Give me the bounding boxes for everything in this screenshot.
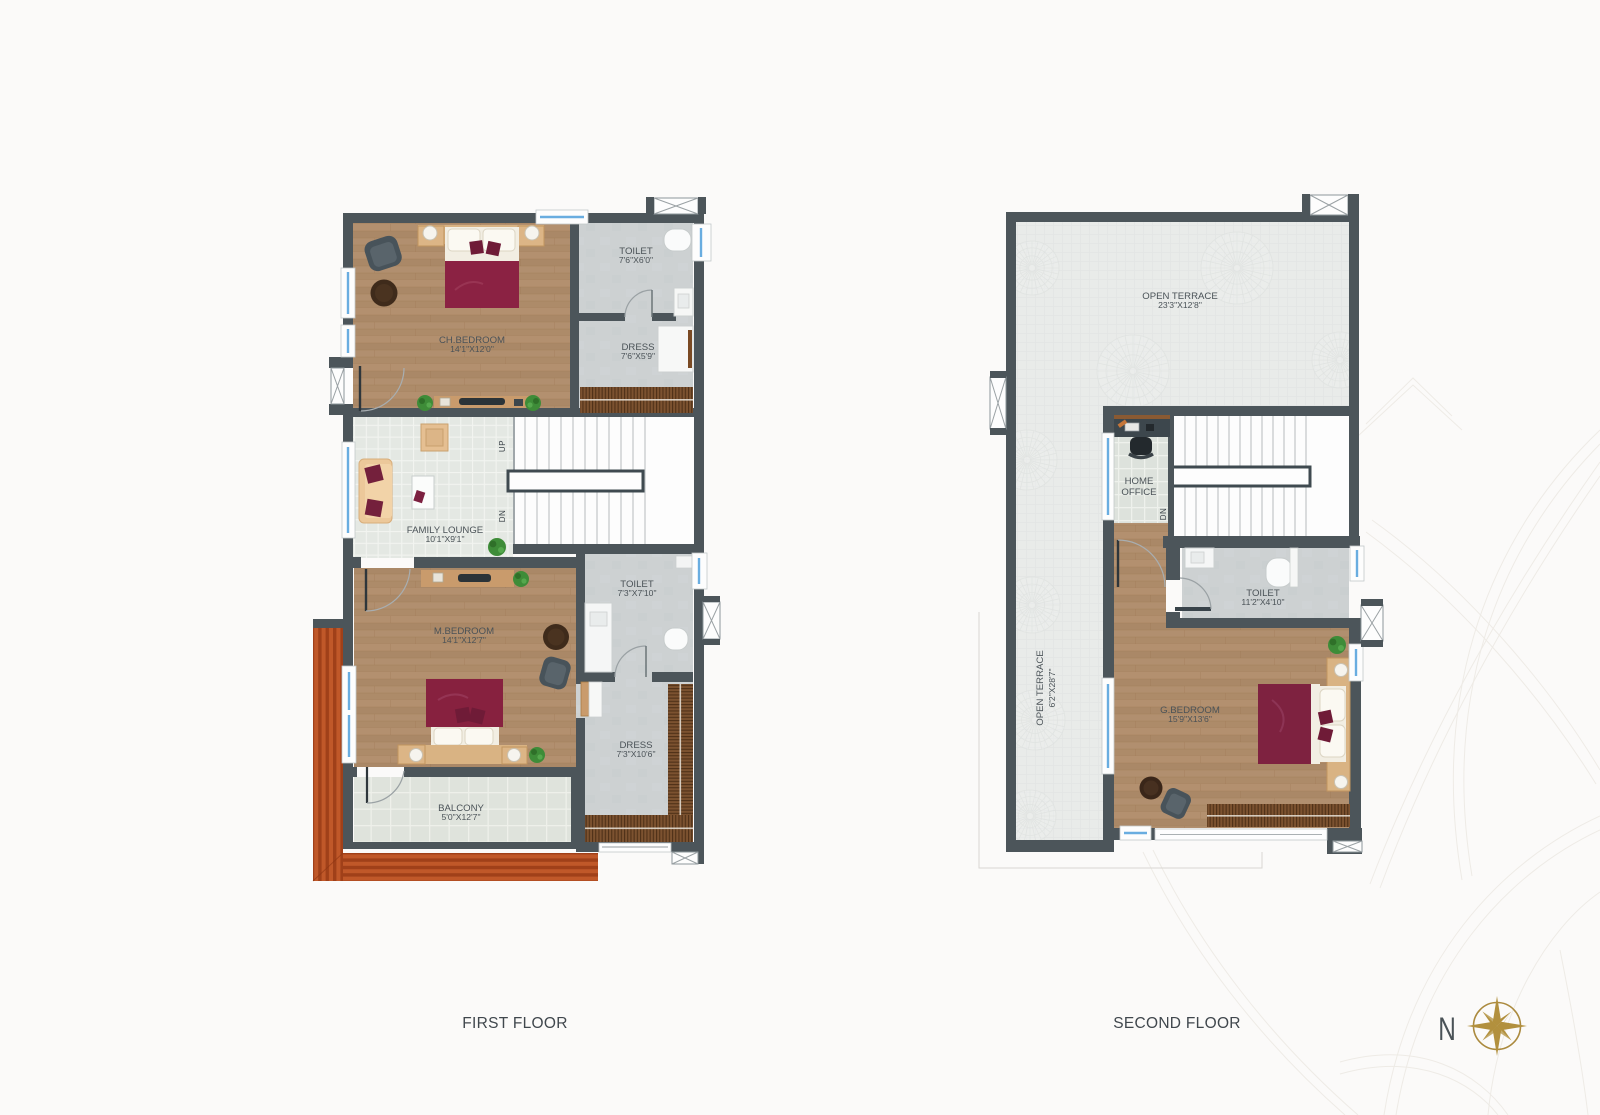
svg-text:DN: DN — [1159, 508, 1168, 521]
svg-text:OFFICE: OFFICE — [1121, 487, 1156, 498]
svg-text:5'0"X12'7": 5'0"X12'7" — [441, 812, 480, 822]
svg-text:7'6"X5'9": 7'6"X5'9" — [621, 351, 655, 361]
svg-text:FIRST FLOOR: FIRST FLOOR — [462, 1015, 568, 1032]
svg-text:14'1"X12'7": 14'1"X12'7" — [442, 635, 486, 645]
svg-text:DN: DN — [498, 510, 507, 523]
svg-text:7'3"X7'10": 7'3"X7'10" — [617, 588, 656, 598]
svg-text:6'2"X28'7": 6'2"X28'7" — [1047, 668, 1057, 707]
svg-text:14'1"X12'0": 14'1"X12'0" — [450, 344, 494, 354]
svg-text:UP: UP — [498, 440, 507, 452]
svg-text:10'1"X9'1": 10'1"X9'1" — [425, 534, 464, 544]
svg-text:7'6"X6'0": 7'6"X6'0" — [619, 255, 653, 265]
svg-text:HOME: HOME — [1125, 476, 1154, 487]
svg-text:15'9"X13'6": 15'9"X13'6" — [1168, 714, 1212, 724]
svg-text:N: N — [1438, 1012, 1456, 1048]
svg-text:23'3"X12'8": 23'3"X12'8" — [1158, 300, 1202, 310]
svg-text:7'3"X10'6": 7'3"X10'6" — [616, 749, 655, 759]
svg-text:SECOND FLOOR: SECOND FLOOR — [1113, 1015, 1241, 1032]
svg-text:OPEN TERRACE: OPEN TERRACE — [1035, 650, 1046, 726]
svg-text:11'2"X4'10": 11'2"X4'10" — [1241, 597, 1284, 607]
